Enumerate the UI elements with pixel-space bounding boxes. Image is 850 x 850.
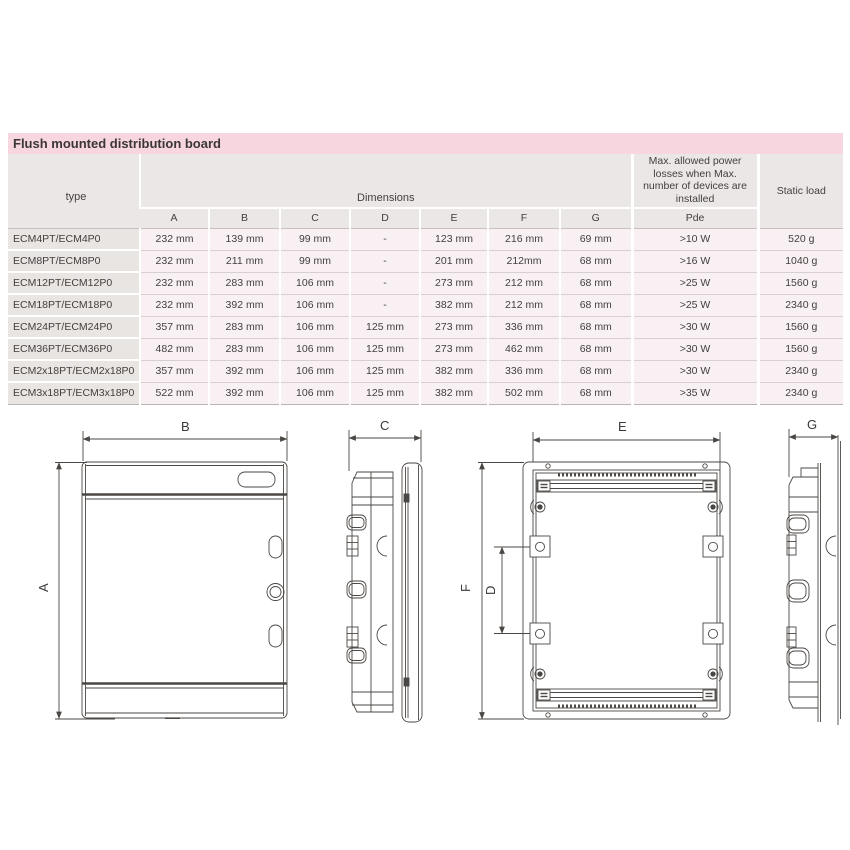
spec-table: type Dimensions Max. allowed power losse… (8, 154, 843, 405)
col-group-dimensions: Dimensions (140, 154, 632, 208)
cell-static-load: 520 g (758, 228, 843, 250)
dimension-e-label: E (618, 419, 627, 434)
cell-b: 283 mm (209, 272, 280, 294)
enclosure-profile-outline (787, 435, 841, 725)
cell-f: 212mm (488, 250, 560, 272)
cell-pde: >30 W (632, 316, 758, 338)
table-row: ECM8PT/ECM8P0 232 mm 211 mm 99 mm - 201 … (8, 250, 843, 272)
cell-f: 462 mm (488, 338, 560, 360)
cell-static-load: 1560 g (758, 316, 843, 338)
cell-g: 68 mm (560, 360, 632, 382)
cell-c: 106 mm (280, 360, 350, 382)
cell-f: 216 mm (488, 228, 560, 250)
cell-static-load: 2340 g (758, 382, 843, 404)
dimension-e-arrow (533, 432, 720, 470)
cell-b: 392 mm (209, 360, 280, 382)
cell-type: ECM3x18PT/ECM3x18P0 (8, 382, 140, 404)
cell-static-load: 2340 g (758, 294, 843, 316)
cell-d: 125 mm (350, 382, 420, 404)
table-row: ECM18PT/ECM18P0 232 mm 392 mm 106 mm - 3… (8, 294, 843, 316)
col-header-b: B (209, 208, 280, 228)
col-header-pde: Max. allowed power losses when Max. numb… (632, 154, 758, 208)
dimension-g-arrow (789, 429, 838, 477)
cell-f: 212 mm (488, 272, 560, 294)
cell-pde: >25 W (632, 272, 758, 294)
top-slot (238, 472, 275, 487)
cell-g: 69 mm (560, 228, 632, 250)
cell-e: 273 mm (420, 316, 488, 338)
cell-a: 357 mm (140, 316, 209, 338)
col-header-type: type (8, 154, 140, 228)
cell-d: - (350, 294, 420, 316)
dimension-a-arrow (55, 463, 115, 720)
enclosure-side-outline (347, 472, 393, 712)
cell-f: 212 mm (488, 294, 560, 316)
cell-d: 125 mm (350, 316, 420, 338)
cell-b: 283 mm (209, 316, 280, 338)
cell-pde: >30 W (632, 360, 758, 382)
col-header-c: C (280, 208, 350, 228)
cell-d: - (350, 272, 420, 294)
cell-e: 382 mm (420, 360, 488, 382)
cell-static-load: 2340 g (758, 360, 843, 382)
cell-e: 382 mm (420, 294, 488, 316)
cell-type: ECM12PT/ECM12P0 (8, 272, 140, 294)
col-header-d: D (350, 208, 420, 228)
cell-c: 99 mm (280, 228, 350, 250)
cell-c: 106 mm (280, 316, 350, 338)
cell-pde: >10 W (632, 228, 758, 250)
cell-c: 99 mm (280, 250, 350, 272)
dimension-f-label: F (458, 584, 473, 592)
col-header-e: E (420, 208, 488, 228)
table-row: ECM4PT/ECM4P0 232 mm 139 mm 99 mm - 123 … (8, 228, 843, 250)
cell-c: 106 mm (280, 382, 350, 404)
cell-b: 211 mm (209, 250, 280, 272)
cell-e: 382 mm (420, 382, 488, 404)
cell-f: 502 mm (488, 382, 560, 404)
cell-type: ECM36PT/ECM36P0 (8, 338, 140, 360)
enclosure-back-outline (523, 462, 730, 719)
dimension-b-label: B (181, 419, 190, 434)
cell-a: 357 mm (140, 360, 209, 382)
cell-f: 336 mm (488, 360, 560, 382)
table-row: ECM3x18PT/ECM3x18P0 522 mm 392 mm 106 mm… (8, 382, 843, 404)
cell-a: 232 mm (140, 272, 209, 294)
dimension-c-label: C (380, 418, 389, 433)
cell-pde: >35 W (632, 382, 758, 404)
col-header-a: A (140, 208, 209, 228)
cell-type: ECM4PT/ECM4P0 (8, 228, 140, 250)
cell-pde: >25 W (632, 294, 758, 316)
col-header-f: F (488, 208, 560, 228)
cell-g: 68 mm (560, 316, 632, 338)
cell-g: 68 mm (560, 382, 632, 404)
side-view-drawing: C (347, 418, 422, 722)
cell-e: 273 mm (420, 272, 488, 294)
dimension-d-label: D (483, 586, 498, 595)
door-hinge-slot (269, 625, 282, 647)
cell-e: 123 mm (420, 228, 488, 250)
section-title: Flush mounted distribution board (8, 136, 221, 151)
cell-static-load: 1040 g (758, 250, 843, 272)
col-header-static-load: Static load (758, 154, 843, 228)
cell-d: 125 mm (350, 360, 420, 382)
cell-type: ECM24PT/ECM24P0 (8, 316, 140, 338)
din-rail-top (537, 480, 716, 492)
table-row: ECM36PT/ECM36P0 482 mm 283 mm 106 mm 125… (8, 338, 843, 360)
col-header-g: G (560, 208, 632, 228)
cell-g: 68 mm (560, 294, 632, 316)
door-hinge-slot (269, 536, 282, 558)
enclosure-front-outline (82, 462, 287, 718)
mounting-tabs (530, 536, 723, 644)
cell-g: 68 mm (560, 250, 632, 272)
datasheet-page: Flush mounted distribution board type Di… (0, 0, 850, 850)
dimension-b-arrow (83, 431, 287, 461)
cell-e: 201 mm (420, 250, 488, 272)
back-view-drawing: E F D (458, 419, 730, 719)
cell-type: ECM8PT/ECM8P0 (8, 250, 140, 272)
dimension-g-label: G (807, 417, 817, 432)
cell-d: - (350, 250, 420, 272)
door-lock (267, 584, 284, 601)
col-header-pde-sub: Pde (632, 208, 758, 228)
cell-type: ECM18PT/ECM18P0 (8, 294, 140, 316)
cell-pde: >30 W (632, 338, 758, 360)
din-rail-bottom (537, 689, 716, 701)
cell-type: ECM2x18PT/ECM2x18P0 (8, 360, 140, 382)
cell-a: 522 mm (140, 382, 209, 404)
cell-b: 392 mm (209, 294, 280, 316)
cell-pde: >16 W (632, 250, 758, 272)
cell-a: 482 mm (140, 338, 209, 360)
cell-g: 68 mm (560, 338, 632, 360)
cell-a: 232 mm (140, 294, 209, 316)
door-side-profile (402, 463, 422, 722)
cell-static-load: 1560 g (758, 338, 843, 360)
cell-b: 283 mm (209, 338, 280, 360)
cell-b: 139 mm (209, 228, 280, 250)
cell-d: - (350, 228, 420, 250)
dimension-d-arrow (494, 547, 538, 634)
cell-f: 336 mm (488, 316, 560, 338)
cell-e: 273 mm (420, 338, 488, 360)
cell-b: 392 mm (209, 382, 280, 404)
cell-static-load: 1560 g (758, 272, 843, 294)
cell-c: 106 mm (280, 272, 350, 294)
front-view-drawing: B A (36, 419, 287, 719)
table-row: ECM12PT/ECM12P0 232 mm 283 mm 106 mm - 2… (8, 272, 843, 294)
section-title-band: Flush mounted distribution board (8, 133, 843, 154)
technical-drawings: B A (30, 415, 850, 745)
table-row: ECM2x18PT/ECM2x18P0 357 mm 392 mm 106 mm… (8, 360, 843, 382)
cell-c: 106 mm (280, 338, 350, 360)
profile-view-drawing: G (787, 417, 841, 725)
cell-g: 68 mm (560, 272, 632, 294)
dimension-c-arrow (349, 430, 421, 471)
dimension-a-label: A (36, 583, 51, 592)
cell-c: 106 mm (280, 294, 350, 316)
cell-a: 232 mm (140, 250, 209, 272)
cell-a: 232 mm (140, 228, 209, 250)
table-row: ECM24PT/ECM24P0 357 mm 283 mm 106 mm 125… (8, 316, 843, 338)
cell-d: 125 mm (350, 338, 420, 360)
corner-fixing-claws (531, 500, 723, 681)
